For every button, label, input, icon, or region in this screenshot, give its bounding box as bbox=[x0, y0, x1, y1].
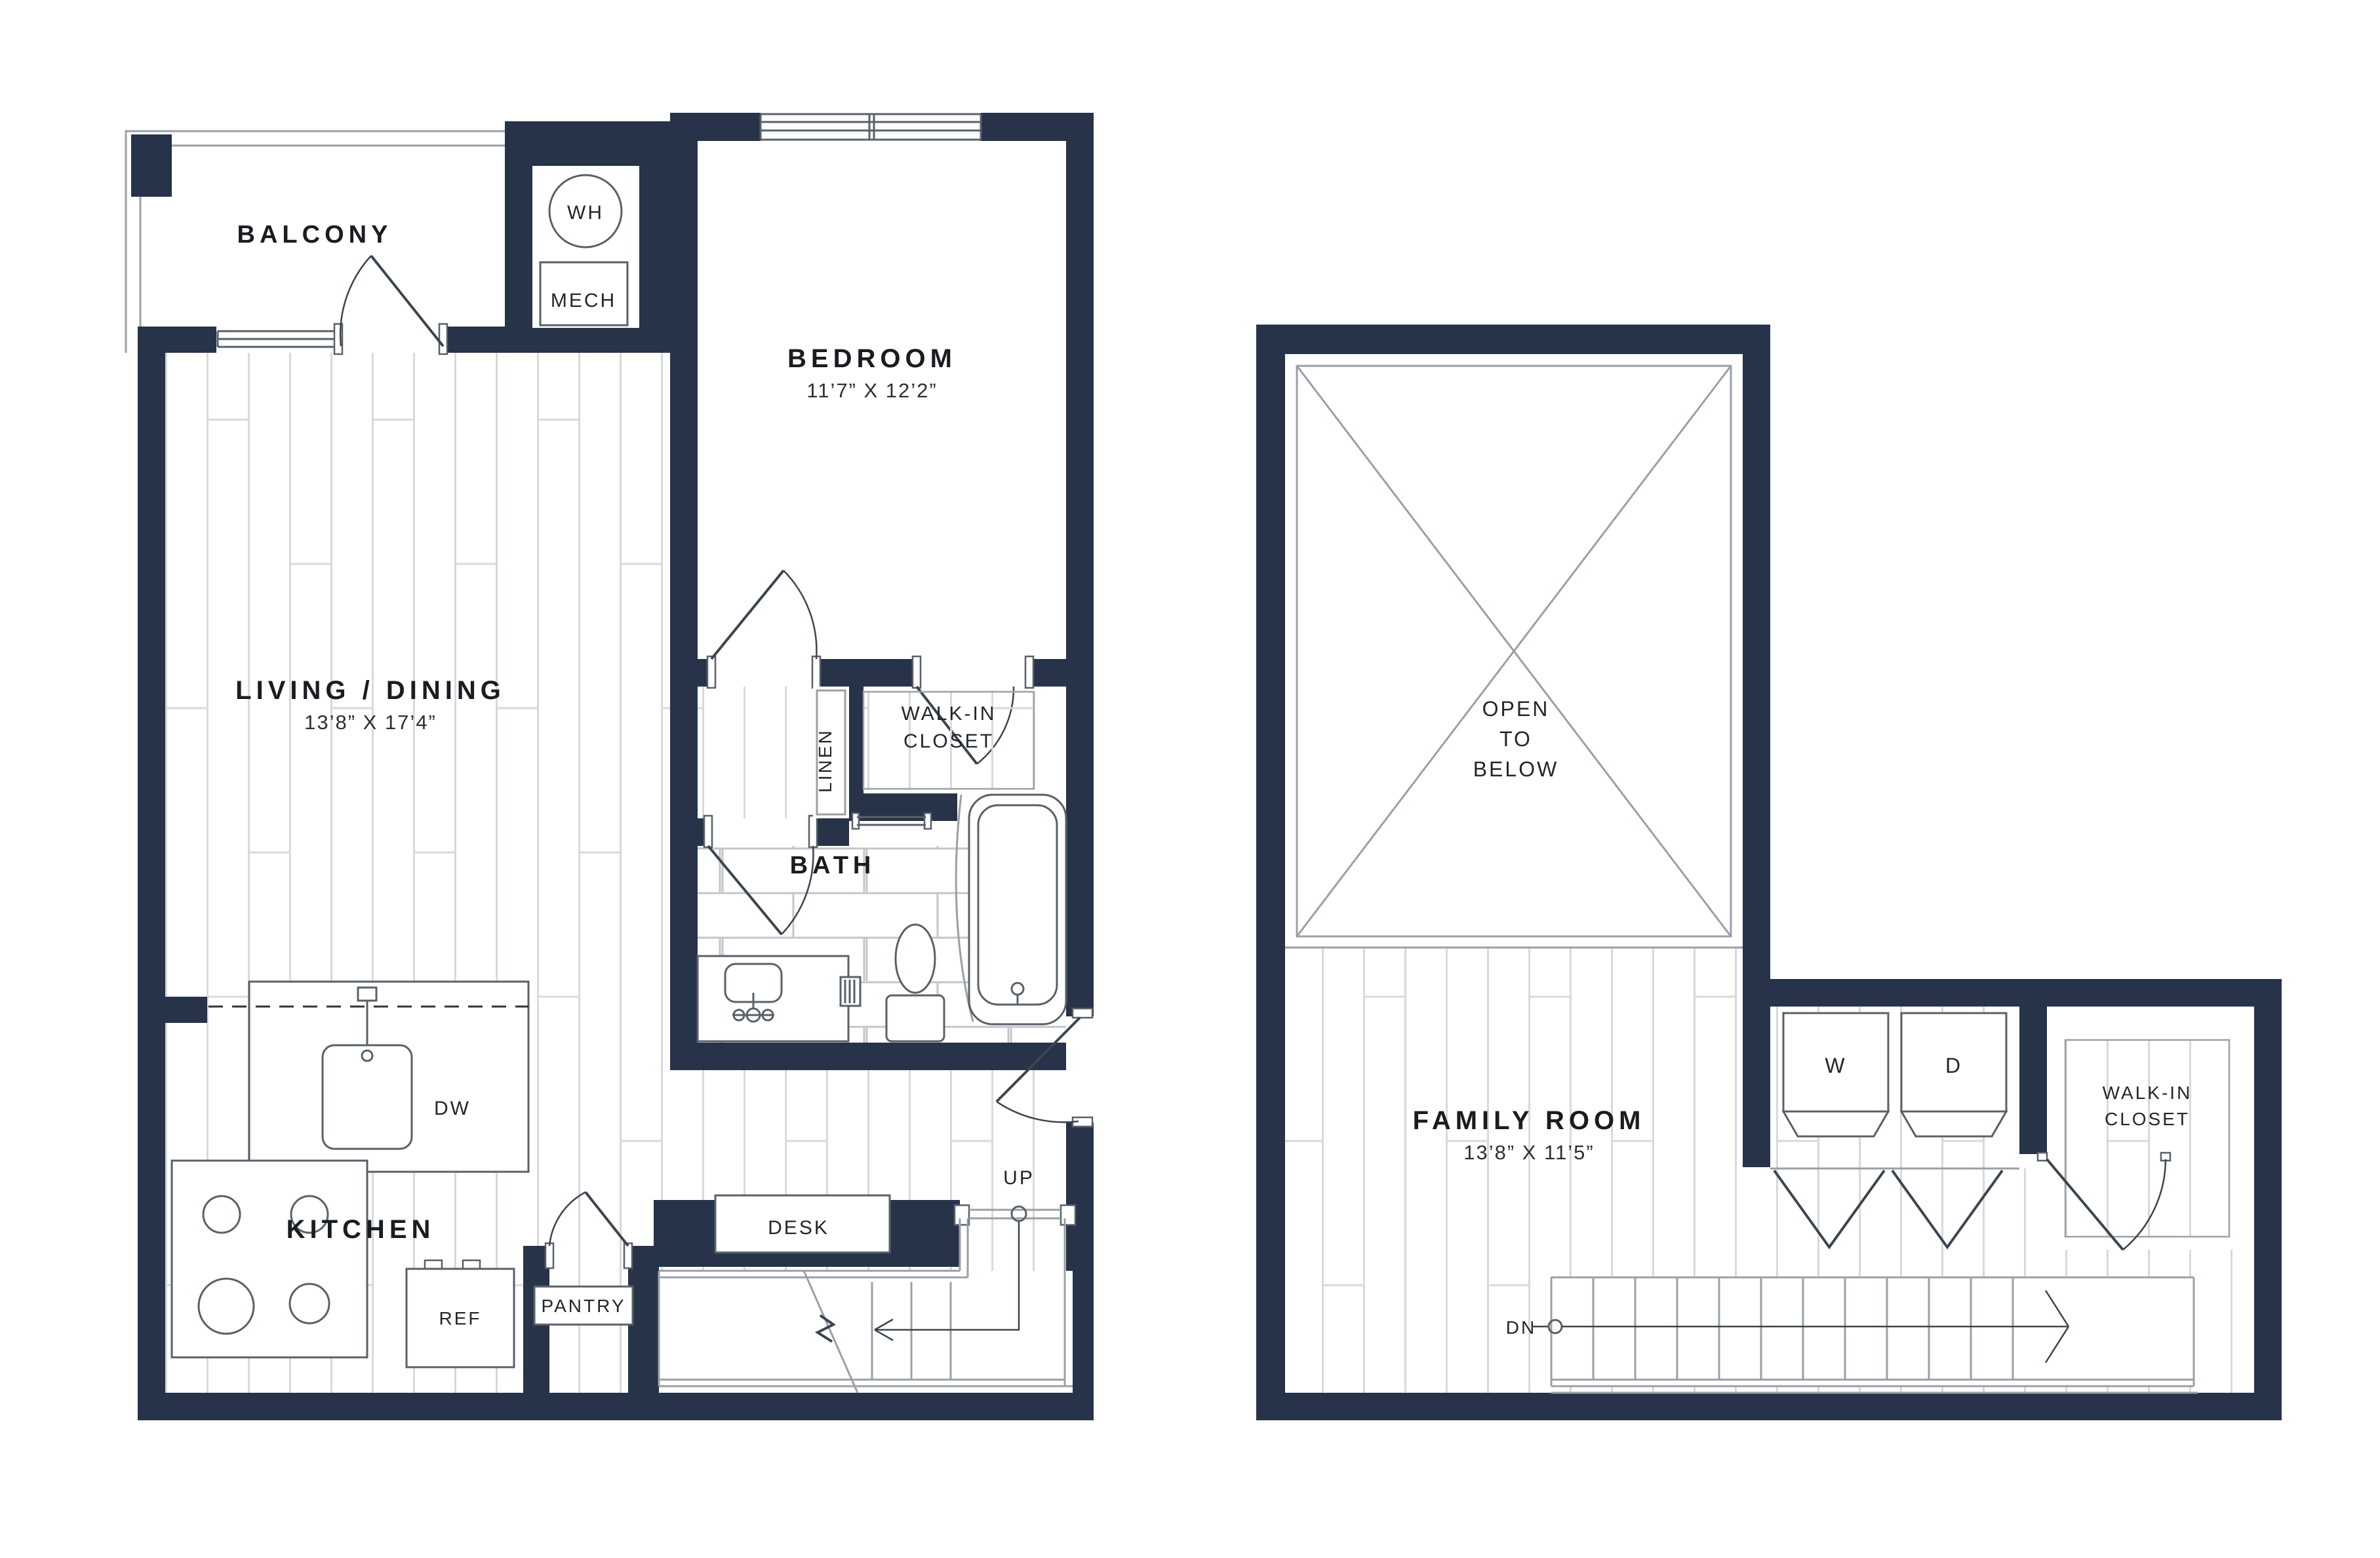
bath-label: BATH bbox=[790, 852, 876, 879]
family-room-dims: 13’8” X 11’5” bbox=[1463, 1141, 1594, 1164]
refrigerator-icon: REF bbox=[407, 1260, 514, 1367]
open-to-below: OPEN TO BELOW bbox=[1285, 366, 1743, 948]
bath-south-wall bbox=[698, 1043, 1066, 1070]
west-wall-upper bbox=[1256, 325, 1285, 1420]
north-wall-upper bbox=[1256, 325, 1770, 354]
balcony-corner-post bbox=[131, 134, 172, 197]
bathtub-icon bbox=[956, 795, 1066, 1024]
linen-closet: LINEN bbox=[813, 687, 849, 818]
living-dining-label: LIVING / DINING bbox=[235, 676, 506, 705]
south-wall-upper-plan bbox=[1256, 1393, 2282, 1420]
mech-closet: WH MECH bbox=[532, 166, 639, 328]
laundry-closet-west-wall bbox=[1743, 1007, 1770, 1167]
balcony-opening bbox=[216, 256, 447, 354]
walk-in-closet2-label-line2: CLOSET bbox=[2105, 1109, 2190, 1129]
walk-in-closet-first-floor: WALK-IN CLOSET bbox=[863, 692, 1034, 789]
balcony-label: BALCONY bbox=[237, 221, 393, 249]
walk-in-closet-second-floor: WALK-IN CLOSET bbox=[2038, 1040, 2229, 1250]
bath-north-wall-right bbox=[813, 818, 849, 846]
open-to-below-cross bbox=[1297, 366, 1731, 936]
walk-in-closet2-label-line1: WALK-IN bbox=[2103, 1083, 2192, 1103]
stairs-up-label: UP bbox=[1003, 1167, 1035, 1189]
pantry-label: PANTRY bbox=[542, 1296, 626, 1316]
open-to-below-line1: OPEN bbox=[1482, 697, 1550, 721]
family-room-label: FAMILY ROOM bbox=[1413, 1106, 1646, 1135]
stove-icon bbox=[172, 1161, 367, 1357]
bedroom-bath-west-wall bbox=[670, 141, 698, 1070]
kitchen-label: KITCHEN bbox=[287, 1215, 435, 1244]
south-wall bbox=[138, 1393, 1094, 1420]
open-to-below-line2: TO bbox=[1499, 727, 1532, 751]
plan-first-floor: WH MECH bbox=[126, 113, 1094, 1420]
hallway-plank-floor bbox=[698, 687, 813, 818]
balcony-door-swing bbox=[340, 256, 371, 346]
bedroom-window bbox=[761, 113, 981, 141]
water-heater-label: WH bbox=[567, 202, 604, 224]
stairwell bbox=[659, 1271, 1073, 1393]
kitchen-counter-stub-wall bbox=[165, 997, 207, 1023]
mechanical-label: MECH bbox=[551, 290, 616, 311]
stairs-down-label: DN bbox=[1506, 1317, 1536, 1338]
refrigerator-label: REF bbox=[439, 1308, 482, 1328]
desk-label: DESK bbox=[768, 1217, 829, 1239]
living-dining-dims: 13’8” X 17’4” bbox=[304, 711, 437, 734]
walk-in-closet-label-line2: CLOSET bbox=[903, 730, 994, 752]
balcony-door-leaf bbox=[371, 256, 443, 346]
dishwasher-label: DW bbox=[434, 1098, 471, 1119]
walk-in-closet-label-line1: WALK-IN bbox=[902, 703, 997, 725]
bedroom-label: BEDROOM bbox=[787, 344, 957, 373]
linen-label: LINEN bbox=[815, 729, 835, 792]
laundry-closet-divider bbox=[2019, 1007, 2047, 1154]
balcony-sill-wall-right bbox=[443, 327, 506, 353]
dryer-label: D bbox=[1945, 1054, 1962, 1077]
stairwell-upper bbox=[1551, 1277, 2194, 1386]
plan-second-floor: OPEN TO BELOW W D bbox=[1256, 325, 2282, 1420]
floorplan-drawing: WH MECH bbox=[0, 0, 2380, 1558]
bedroom-dims: 11’7” X 12’2” bbox=[806, 379, 937, 402]
east-wall-upper bbox=[1066, 113, 1094, 1016]
wing-north-wall bbox=[1743, 979, 2282, 1007]
stairs-second-floor: DN bbox=[1506, 1277, 2198, 1393]
bedroom-south-wall-mid bbox=[816, 659, 917, 687]
open-area-east-wall bbox=[1743, 325, 1770, 1007]
bedroom-door bbox=[707, 570, 820, 688]
washer-label: W bbox=[1825, 1054, 1846, 1077]
east-wall-upper-plan bbox=[2254, 979, 2282, 1420]
bedroom-north-wall-left bbox=[670, 113, 761, 141]
open-to-below-line3: BELOW bbox=[1473, 757, 1559, 781]
floorplan-page: WH MECH bbox=[0, 0, 2380, 1558]
west-wall bbox=[138, 327, 165, 1420]
desk-nook: DESK bbox=[715, 1195, 890, 1252]
bedroom-south-wall-right bbox=[1029, 659, 1066, 687]
door-jamb bbox=[439, 324, 447, 354]
